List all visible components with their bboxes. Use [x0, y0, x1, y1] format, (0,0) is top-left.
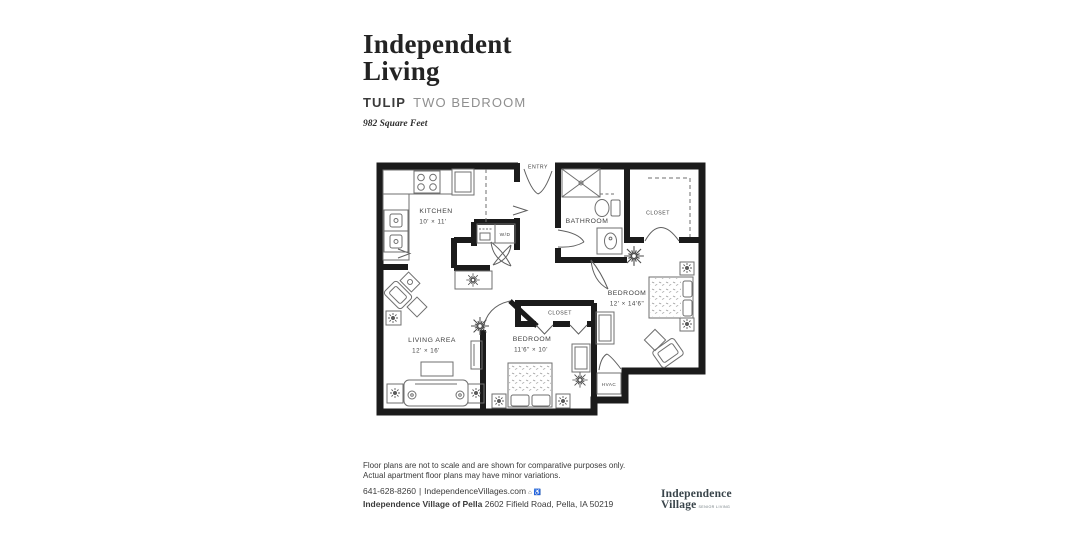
entry-label: ENTRY	[528, 165, 548, 171]
coffee-table	[421, 362, 453, 376]
website: IndependenceVillages.com	[424, 486, 526, 496]
lamp-bedroom2-left	[494, 396, 504, 406]
bedroom1-door-swing	[591, 260, 608, 289]
logo-line2: Village	[661, 499, 696, 511]
bathroom-vanity	[597, 228, 622, 254]
living-dims: 12' × 16'	[412, 348, 440, 355]
bedroom1-dresser	[596, 312, 614, 344]
shower	[562, 169, 600, 197]
kitchen-label: KITCHEN	[419, 208, 452, 215]
bathroom-fixtures	[562, 169, 622, 254]
bedroom2-dresser	[572, 344, 590, 372]
closet-top-shelf-line	[648, 178, 690, 237]
lamp-living-table	[388, 313, 398, 323]
contact-separator: |	[419, 486, 421, 496]
kitchen-sink	[384, 210, 408, 252]
company-logo: Independence VillageSENIOR LIVING	[661, 489, 732, 512]
bedroom2-dims: 11'6" × 10'	[514, 347, 548, 354]
street-address: 2602 Fifield Road, Pella, IA 50219	[485, 499, 614, 509]
bedroom1-ottoman	[644, 329, 665, 350]
bedroom1-bed	[649, 277, 693, 318]
lamp-bedroom1-top	[682, 263, 692, 273]
bedroom2-furniture	[492, 344, 590, 408]
bedroom2-bed	[508, 363, 552, 407]
disclaimer-line2: Actual apartment floor plans may have mi…	[363, 471, 625, 481]
bedroom1-dims: 12' × 14'6"	[610, 301, 644, 308]
hvac-label: HVAC	[602, 382, 617, 387]
kitchen-counter-top	[383, 170, 452, 194]
contact-line: 641-628-8260|IndependenceVillages.com⌂♿	[363, 486, 541, 496]
ceiling-fan-living	[471, 317, 489, 335]
living-side-table	[400, 272, 420, 292]
closet2-bifold-left	[536, 325, 553, 334]
wd-label: W/D	[500, 232, 511, 238]
bedroom2-label: BEDROOM	[513, 336, 552, 343]
bathroom-door-swing	[558, 230, 584, 247]
accessibility-icon: ♿	[534, 490, 541, 496]
equal-housing-icon: ⌂	[528, 490, 532, 496]
lamp-bedroom2-right	[558, 396, 568, 406]
bathroom-label: BATHROOM	[566, 218, 609, 225]
living-label: LIVING AREA	[408, 337, 456, 344]
closet2-label: CLOSET	[548, 311, 572, 317]
lamp-bedroom1-bottom	[682, 319, 692, 329]
disclaimer: Floor plans are not to scale and are sho…	[363, 461, 625, 480]
closet-top-label: CLOSET	[646, 211, 670, 217]
logo-tagline: SENIOR LIVING	[698, 505, 730, 509]
refrigerator	[452, 169, 474, 195]
lamp-living-right	[471, 388, 481, 398]
hvac-door-swing	[599, 354, 621, 370]
ceiling-fan-bedroom2	[572, 372, 587, 387]
toilet	[595, 200, 620, 217]
hall-opening-chevron	[513, 206, 527, 215]
disclaimer-line1: Floor plans are not to scale and are sho…	[363, 461, 625, 471]
sofa	[404, 380, 468, 406]
bedroom1-label: BEDROOM	[608, 290, 647, 297]
kitchen-dims: 10' × 11'	[419, 219, 446, 226]
chandelier-dining	[466, 273, 480, 287]
address-line: Independence Village of Pella 2602 Fifie…	[363, 499, 613, 509]
bedroom1-chair	[652, 337, 685, 368]
lamp-living-left	[390, 388, 400, 398]
ceiling-fans	[466, 246, 644, 388]
brochure-page: Independent Living TULIPTWO BEDROOM 982 …	[0, 0, 1080, 556]
bedroom2-door-arc	[483, 301, 510, 329]
entry-door-swing	[524, 169, 552, 194]
community-name: Independence Village of Pella	[363, 499, 482, 509]
closet2-bifold-right	[570, 325, 587, 334]
phone-number: 641-628-8260	[363, 486, 416, 496]
closet-top-door-swing	[645, 228, 679, 242]
ceiling-fan-hall	[624, 246, 644, 266]
stove	[414, 171, 440, 193]
